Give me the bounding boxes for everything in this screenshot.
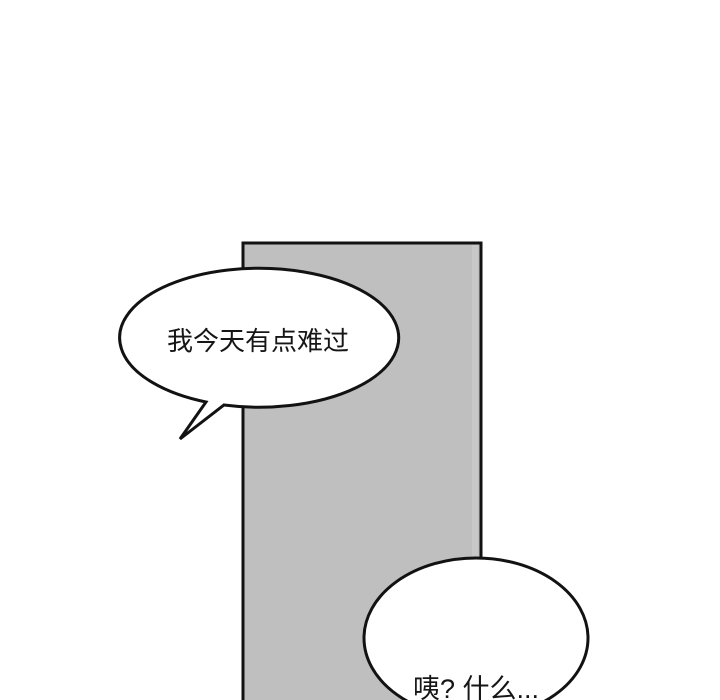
speech-bubble-2-line-1: 咦? 什么... bbox=[336, 672, 616, 700]
speech-bubble-2-text: 咦? 什么... 难过什么? bbox=[336, 604, 616, 700]
comic-page: 我今天有点难过 咦? 什么... 难过什么? bbox=[0, 0, 720, 700]
speech-bubble-1-text: 我今天有点难过 bbox=[118, 324, 398, 358]
